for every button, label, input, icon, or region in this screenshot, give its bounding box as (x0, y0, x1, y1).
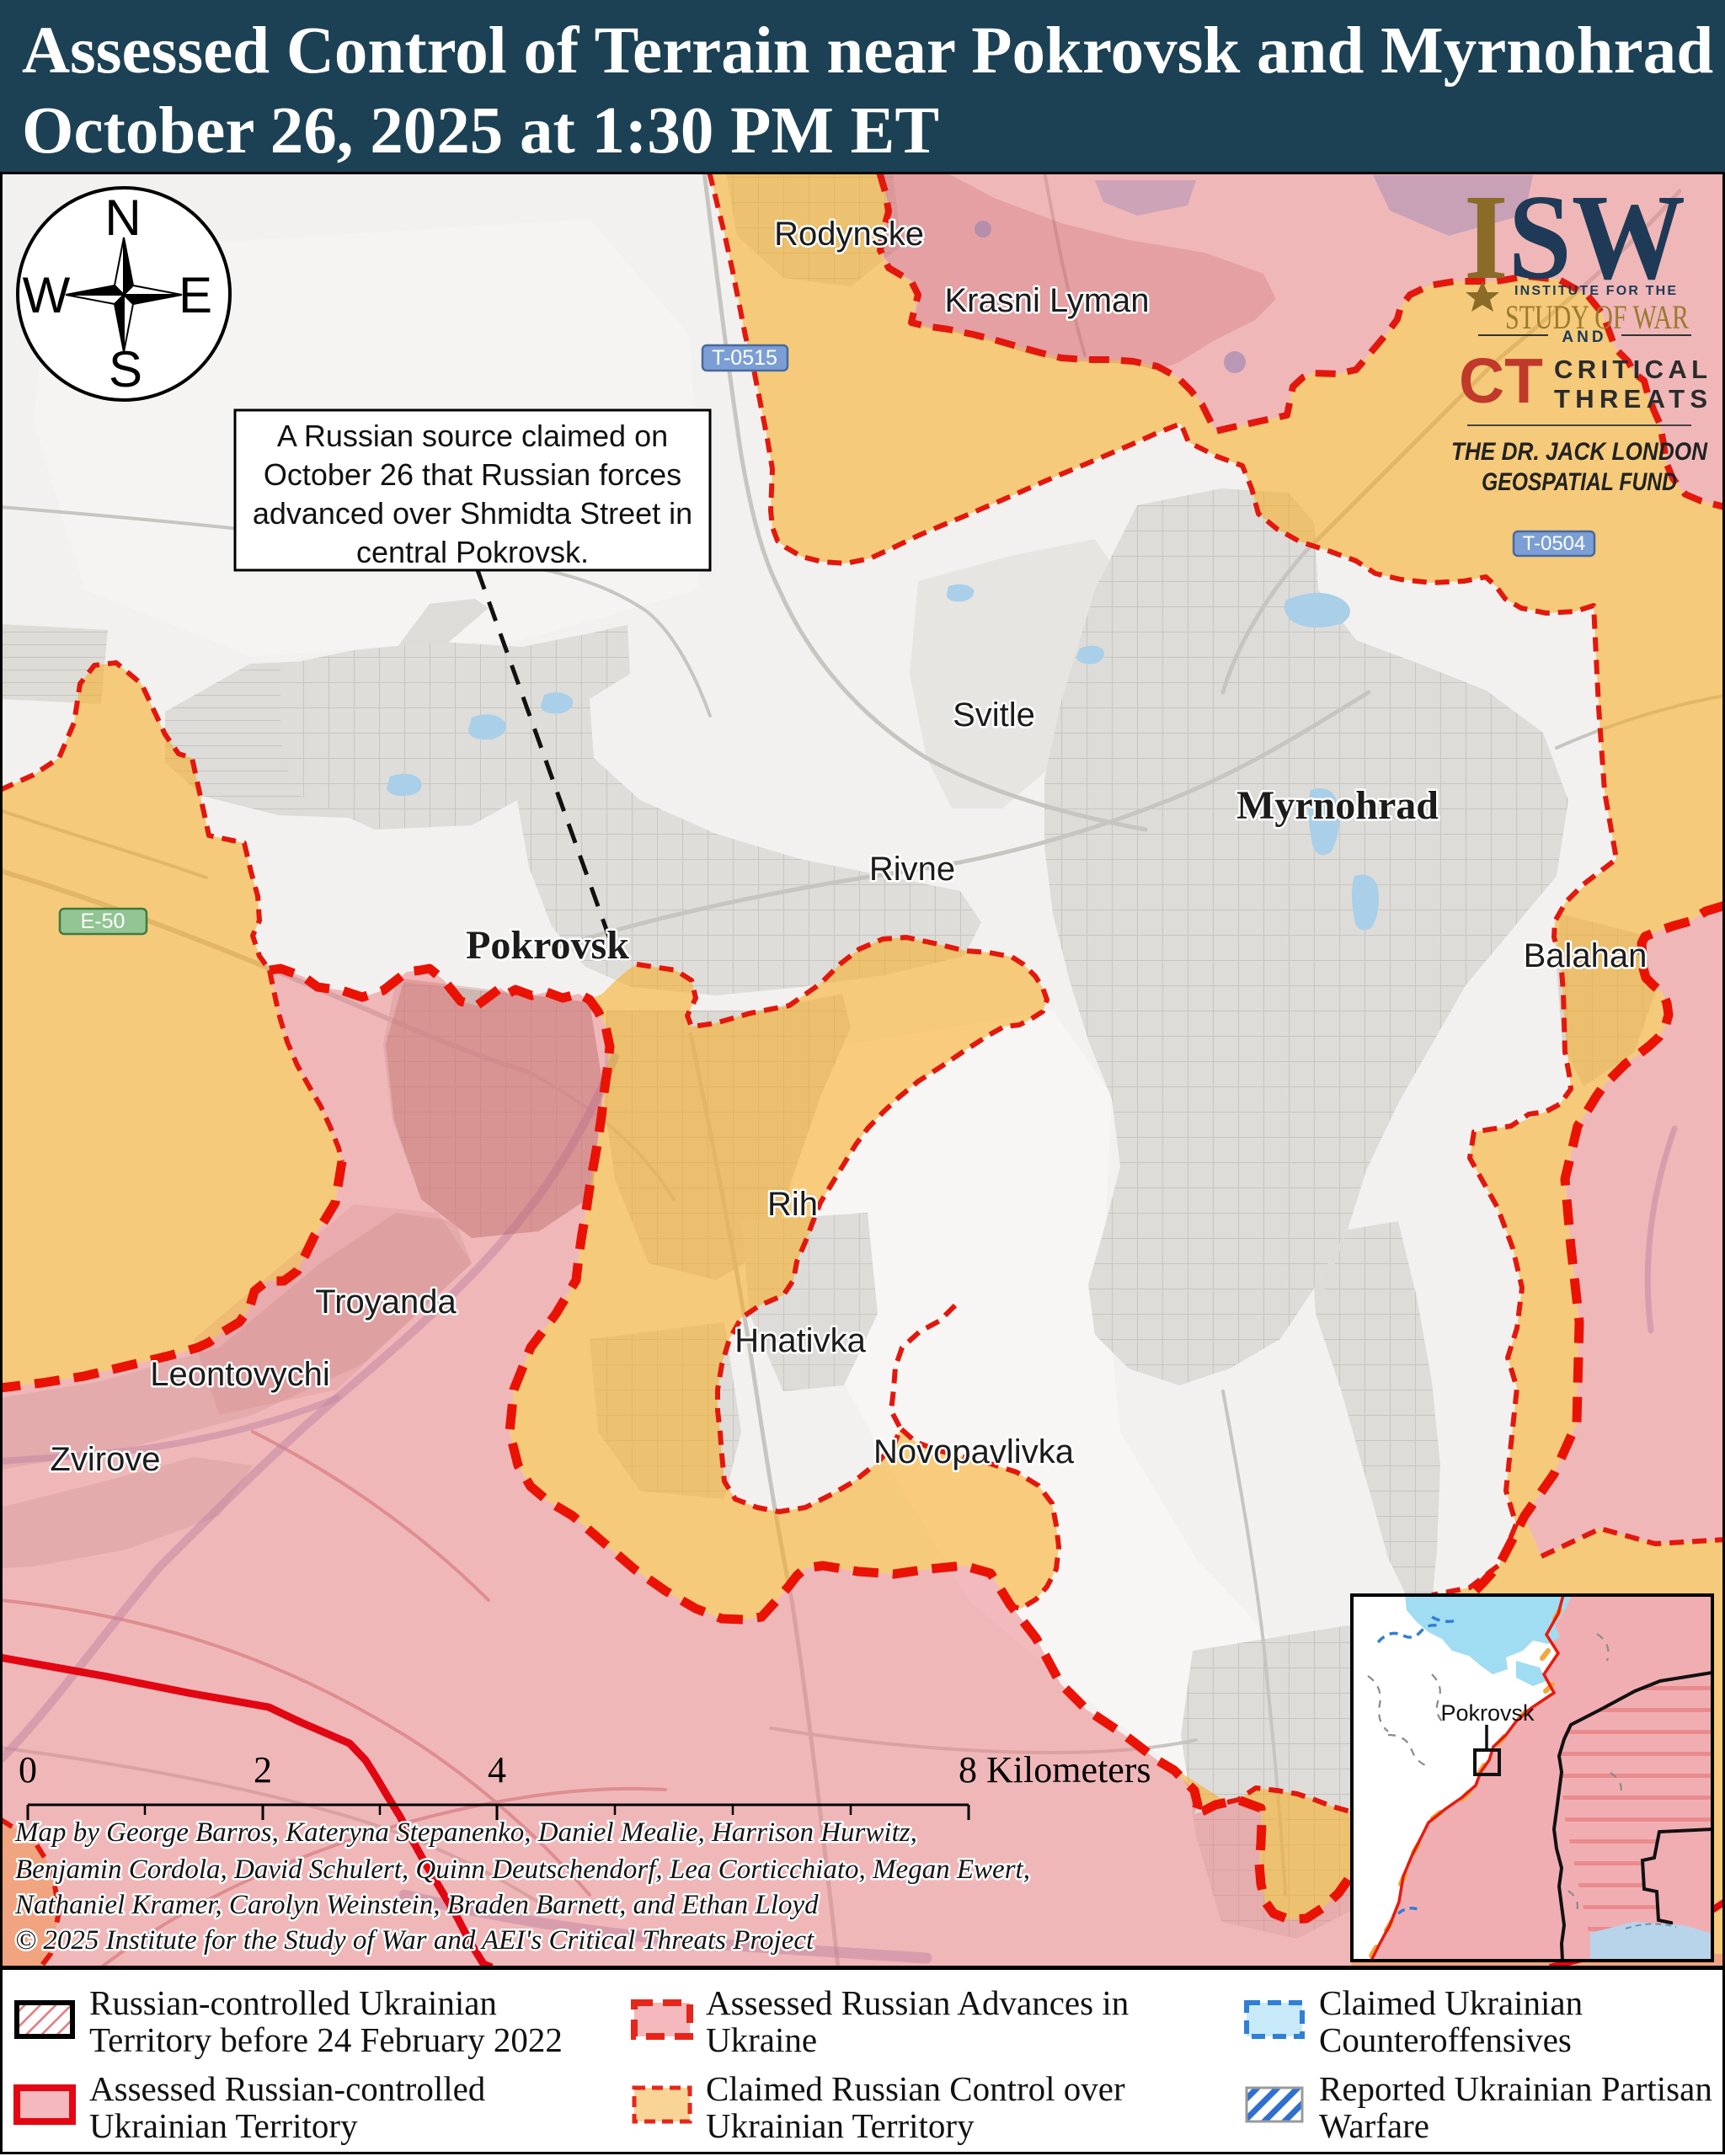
svg-text:Assessed Russian-controlled: Assessed Russian-controlled (89, 2069, 485, 2108)
svg-text:Claimed Russian Control over: Claimed Russian Control over (706, 2069, 1125, 2108)
svg-text:central Pokrovsk.: central Pokrovsk. (356, 535, 589, 569)
svg-text:Assessed Russian Advances in: Assessed Russian Advances in (706, 1983, 1129, 2022)
svg-text:Assessed Control of Terrain ne: Assessed Control of Terrain near Pokrovs… (22, 14, 1713, 88)
svg-text:4: 4 (488, 1749, 506, 1790)
svg-text:S: S (109, 341, 142, 398)
svg-text:N: N (104, 189, 141, 246)
svg-text:© 2025 Institute for the Study: © 2025 Institute for the Study of War an… (15, 1925, 814, 1956)
svg-text:THREATS: THREATS (1554, 384, 1707, 414)
svg-text:0: 0 (19, 1749, 37, 1790)
svg-text:CT: CT (1459, 345, 1543, 416)
svg-text:T-0504: T-0504 (1523, 532, 1586, 555)
svg-text:advanced over Shmidta Street i: advanced over Shmidta Street in (253, 496, 692, 531)
svg-text:A Russian source claimed on: A Russian source claimed on (277, 419, 668, 453)
svg-text:Benjamin Cordola, David Schule: Benjamin Cordola, David Schulert, Quinn … (15, 1854, 1030, 1885)
svg-text:Ukrainian Territory: Ukrainian Territory (89, 2106, 358, 2145)
svg-text:T-0515: T-0515 (712, 346, 777, 370)
svg-text:Counteroffensives: Counteroffensives (1319, 2020, 1572, 2059)
svg-text:Rih: Rih (767, 1186, 818, 1223)
svg-text:Troyanda: Troyanda (315, 1283, 457, 1321)
svg-text:GEOSPATIAL FUND: GEOSPATIAL FUND (1482, 468, 1677, 496)
svg-text:Myrnohrad: Myrnohrad (1236, 783, 1439, 828)
svg-text:Claimed Ukrainian: Claimed Ukrainian (1319, 1983, 1583, 2022)
svg-text:Rodynske: Rodynske (774, 216, 924, 253)
svg-text:Leontovychi: Leontovychi (150, 1356, 329, 1393)
svg-text:Balahan: Balahan (1524, 937, 1648, 974)
svg-text:Russian-controlled Ukrainian: Russian-controlled Ukrainian (89, 1983, 497, 2022)
svg-text:October 26, 2025 at 1:30 PM ET: October 26, 2025 at 1:30 PM ET (22, 94, 939, 168)
svg-text:October 26 that Russian forces: October 26 that Russian forces (264, 457, 681, 492)
svg-text:Territory before 24 February 2: Territory before 24 February 2022 (89, 2020, 563, 2059)
svg-text:Krasni Lyman: Krasni Lyman (944, 282, 1149, 319)
svg-text:Ukraine: Ukraine (706, 2020, 817, 2059)
svg-text:E: E (179, 267, 212, 323)
svg-text:Pokrovsk: Pokrovsk (466, 923, 629, 968)
svg-text:Reported Ukrainian Partisan: Reported Ukrainian Partisan (1319, 2069, 1712, 2108)
svg-text:THE DR. JACK LONDON: THE DR. JACK LONDON (1451, 438, 1708, 466)
svg-text:Rivne: Rivne (869, 851, 955, 888)
svg-text:Hnativka: Hnativka (734, 1322, 866, 1359)
svg-text:Ukrainian Territory: Ukrainian Territory (706, 2106, 975, 2145)
svg-text:Novopavlivka: Novopavlivka (873, 1433, 1075, 1470)
svg-text:Pokrovsk: Pokrovsk (1440, 1700, 1535, 1726)
svg-text:INSTITUTE FOR THE: INSTITUTE FOR THE (1514, 284, 1676, 298)
svg-text:Svitle: Svitle (953, 696, 1035, 734)
svg-text:E-50: E-50 (81, 910, 126, 933)
svg-text:AND: AND (1562, 328, 1606, 346)
svg-text:Zvirove: Zvirove (50, 1441, 160, 1478)
svg-text:8 Kilometers: 8 Kilometers (959, 1749, 1151, 1790)
svg-text:Nathaniel Kramer, Carolyn Wein: Nathaniel Kramer, Carolyn Weinstein, Bra… (14, 1890, 819, 1920)
svg-text:2: 2 (254, 1749, 272, 1790)
svg-text:Warfare: Warfare (1319, 2106, 1429, 2145)
svg-text:Map by George Barros, Kateryna: Map by George Barros, Kateryna Stepanenk… (14, 1817, 917, 1848)
svg-text:W: W (23, 267, 71, 323)
